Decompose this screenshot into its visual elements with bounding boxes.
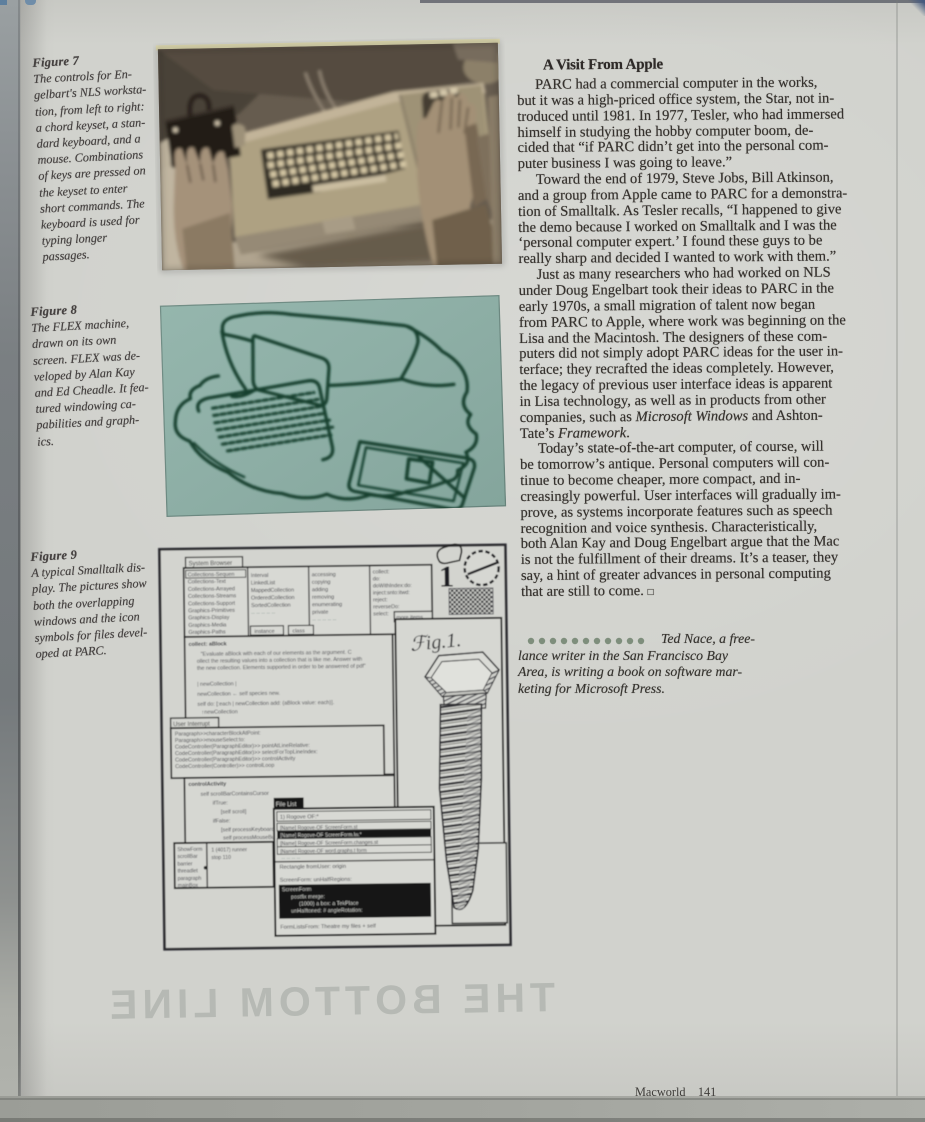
svg-text:ScreenForm: ScreenForm — [282, 887, 312, 893]
svg-text:threadlet: threadlet — [178, 868, 199, 874]
svg-text:collect:: collect: — [373, 569, 390, 575]
svg-text:MappedCollection: MappedCollection — [251, 588, 294, 595]
svg-text:enumerating: enumerating — [312, 602, 342, 608]
svg-text:-- -- -- -- --: -- -- -- -- -- — [312, 617, 336, 623]
svg-text:Rectangle fromUser: origin: Rectangle fromUser: origin — [280, 864, 347, 871]
svg-text:[self scroll]: [self scroll] — [221, 809, 247, 815]
svg-text:collect: aBlock: collect: aBlock — [189, 641, 227, 647]
svg-text:Collections-Text: Collections-Text — [188, 579, 227, 586]
svg-text:unHalftoned: # angleRotation:: unHalftoned: # angleRotation: — [291, 908, 362, 915]
svg-text:ifTrue:: ifTrue: — [213, 800, 228, 806]
svg-text:private: private — [312, 610, 328, 616]
svg-text:↑newCollection: ↑newCollection — [201, 709, 237, 715]
svg-text:1) Rogove OF:*: 1) Rogove OF:* — [280, 814, 320, 821]
svg-text:newCollection ← self species n: newCollection ← self species new. — [197, 691, 280, 698]
svg-text:inject:snto:itwd:: inject:snto:itwd: — [373, 590, 410, 596]
svg-text:Collections-Streams: Collections-Streams — [188, 593, 237, 600]
svg-text:doWithIndex:do:: doWithIndex:do: — [373, 583, 412, 590]
svg-text:Paragraph>>characterBlockAtPoi: Paragraph>>characterBlockAtPoint: — [175, 731, 261, 738]
svg-text:FormListsFrom: Theatre my file: FormListsFrom: Theatre my files + self — [280, 924, 376, 931]
svg-text:Interval: Interval — [251, 573, 269, 579]
svg-text:mainBox: mainBox — [178, 883, 199, 889]
svg-text:Graphics-Paths: Graphics-Paths — [188, 630, 226, 636]
svg-text:1 (4017) runner: 1 (4017) runner — [211, 847, 247, 853]
svg-text:Graphics-Display: Graphics-Display — [188, 615, 229, 622]
svg-text:[Name] Rogove-OF word.graphs.t: [Name] Rogove-OF word.graphs.t form — [280, 848, 366, 855]
svg-text:ifFalse:: ifFalse: — [213, 818, 230, 824]
svg-text:-- -- -- -- --: -- -- -- -- -- — [251, 610, 275, 616]
svg-text:Graphics-Media: Graphics-Media — [188, 622, 226, 628]
svg-text:[self processKeyboard.: [self processKeyboard. — [221, 827, 276, 834]
svg-text:removing: removing — [312, 595, 334, 601]
svg-text:File List: File List — [276, 802, 297, 808]
svg-text:System Browser: System Browser — [189, 561, 233, 568]
svg-text:reverseDo:: reverseDo: — [373, 604, 399, 610]
svg-text:self scrollBarContainsCursor: self scrollBarContainsCursor — [201, 791, 270, 798]
svg-text:accessing: accessing — [312, 572, 336, 578]
svg-text:reject:: reject: — [373, 597, 388, 603]
svg-text:do:: do: — [373, 576, 381, 582]
svg-text:OrderedCollection: OrderedCollection — [251, 595, 295, 602]
svg-text:Collections-Support: Collections-Support — [188, 601, 236, 608]
svg-text:LinkedList: LinkedList — [251, 580, 276, 586]
svg-text:SortedCollection: SortedCollection — [251, 603, 291, 610]
svg-text:Graphics-Primitives: Graphics-Primitives — [188, 608, 235, 615]
svg-text:paragraph: paragraph — [178, 876, 202, 882]
svg-text:postfix merge:: postfix merge: — [291, 894, 325, 900]
svg-text:(1000) a box: a TekPlace: (1000) a box: a TekPlace — [299, 901, 359, 908]
svg-text:Collections-Sequen: Collections-Sequen — [188, 572, 235, 579]
svg-text:instance: instance — [254, 629, 274, 635]
svg-text:Collections-Arrayed: Collections-Arrayed — [188, 586, 235, 593]
svg-text:select:: select: — [373, 611, 389, 617]
svg-text:| newCollection |: | newCollection | — [197, 681, 236, 688]
svg-text:ScreenForm: unHalfRegions:: ScreenForm: unHalfRegions: — [280, 877, 353, 884]
svg-text:barrier: barrier — [177, 861, 192, 867]
svg-text:copying: copying — [312, 580, 331, 586]
svg-text:stop 110: stop 110 — [211, 855, 231, 861]
svg-text:ShowForm: ShowForm — [177, 847, 202, 853]
svg-text:class: class — [292, 628, 305, 634]
svg-text:controlActivity: controlActivity — [188, 781, 226, 787]
svg-text:adding: adding — [312, 587, 328, 593]
svg-text:scrollBar: scrollBar — [177, 854, 198, 860]
svg-text:-- -- -- --: -- -- -- -- — [281, 855, 300, 861]
